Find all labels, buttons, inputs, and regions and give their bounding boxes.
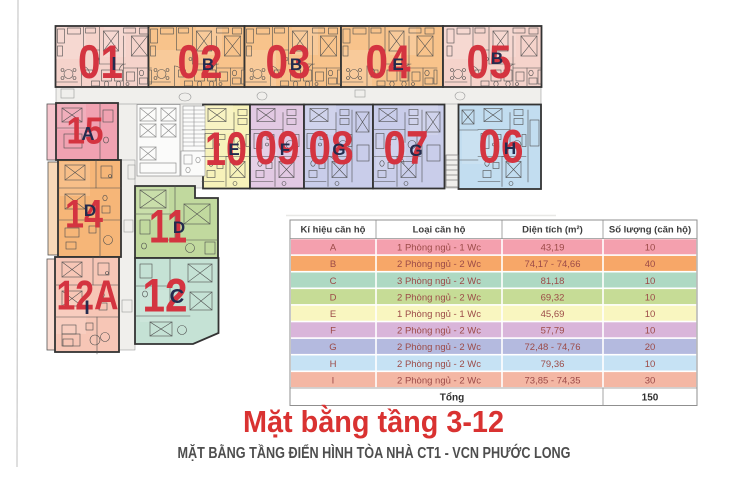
- svg-text:F: F: [330, 326, 336, 337]
- svg-text:72,48 - 74,76: 72,48 - 74,76: [525, 342, 581, 353]
- svg-text:I: I: [84, 298, 89, 319]
- svg-text:C: C: [330, 276, 337, 287]
- svg-text:81,18: 81,18: [541, 276, 565, 287]
- svg-text:G: G: [409, 141, 422, 160]
- svg-text:05: 05: [467, 35, 512, 88]
- svg-text:B: B: [290, 55, 302, 74]
- svg-text:09: 09: [255, 121, 300, 174]
- svg-text:2 Phòng ngủ - 2 Wc: 2 Phòng ngủ - 2 Wc: [397, 342, 481, 353]
- svg-text:E: E: [330, 309, 336, 320]
- svg-text:1 Phòng ngủ - 1 Wc: 1 Phòng ngủ - 1 Wc: [397, 309, 481, 320]
- svg-text:73,85 - 74,35: 73,85 - 74,35: [525, 375, 581, 386]
- svg-text:30: 30: [645, 375, 656, 386]
- svg-text:2 Phòng ngủ - 2 Wc: 2 Phòng ngủ - 2 Wc: [397, 259, 481, 270]
- svg-text:10: 10: [645, 326, 656, 337]
- svg-text:F: F: [280, 140, 290, 159]
- svg-text:A: A: [82, 124, 95, 144]
- svg-text:43,19: 43,19: [541, 243, 565, 254]
- svg-text:Mặt bằng tầng 3-12: Mặt bằng tầng 3-12: [243, 403, 504, 439]
- svg-text:79,36: 79,36: [541, 359, 565, 370]
- svg-text:D: D: [330, 292, 337, 303]
- svg-text:150: 150: [642, 393, 659, 404]
- svg-text:03: 03: [266, 35, 311, 88]
- svg-text:Tổng: Tổng: [440, 392, 464, 404]
- svg-text:A: A: [330, 243, 337, 254]
- svg-text:MẶT BẰNG TẦNG ĐIỂN HÌNH TÒA NH: MẶT BẰNG TẦNG ĐIỂN HÌNH TÒA NHÀ CT1 - VC…: [178, 443, 571, 462]
- svg-text:Kí hiệu căn hộ: Kí hiệu căn hộ: [301, 225, 366, 236]
- svg-text:E: E: [228, 140, 239, 159]
- svg-text:H: H: [330, 359, 337, 370]
- svg-text:08: 08: [309, 121, 354, 174]
- svg-text:B: B: [330, 259, 336, 270]
- svg-text:Số lượng (căn hộ): Số lượng (căn hộ): [609, 225, 691, 236]
- svg-text:10: 10: [645, 359, 656, 370]
- svg-text:D: D: [173, 218, 185, 237]
- svg-text:10: 10: [645, 243, 656, 254]
- svg-text:20: 20: [645, 342, 656, 353]
- svg-text:04: 04: [366, 35, 411, 88]
- svg-text:B: B: [202, 55, 214, 74]
- svg-text:Diện tích (m²): Diện tích (m²): [522, 225, 583, 236]
- svg-text:E: E: [392, 55, 403, 74]
- svg-text:2 Phòng ngủ - 2 Wc: 2 Phòng ngủ - 2 Wc: [397, 375, 481, 386]
- svg-text:69,32: 69,32: [541, 292, 565, 303]
- svg-text:40: 40: [645, 259, 656, 270]
- svg-text:I: I: [332, 375, 335, 386]
- svg-text:10: 10: [645, 309, 656, 320]
- svg-text:B: B: [491, 49, 503, 68]
- svg-text:3 Phòng ngủ - 2 Wc: 3 Phòng ngủ - 2 Wc: [397, 276, 481, 287]
- svg-text:I: I: [111, 54, 116, 74]
- svg-text:57,79: 57,79: [541, 326, 565, 337]
- svg-text:2 Phòng ngủ - 2 Wc: 2 Phòng ngủ - 2 Wc: [397, 359, 481, 370]
- svg-text:H: H: [504, 139, 516, 158]
- svg-text:10: 10: [205, 122, 247, 175]
- svg-text:02: 02: [178, 35, 223, 88]
- svg-text:Loại căn hộ: Loại căn hộ: [413, 225, 466, 236]
- svg-text:06: 06: [479, 120, 524, 173]
- svg-text:10: 10: [645, 292, 656, 303]
- svg-text:74,17 - 74,66: 74,17 - 74,66: [525, 259, 581, 270]
- svg-text:G: G: [329, 342, 336, 353]
- svg-text:45,69: 45,69: [541, 309, 565, 320]
- svg-text:2 Phòng ngủ - 2 Wc: 2 Phòng ngủ - 2 Wc: [397, 292, 481, 303]
- svg-text:1 Phòng ngủ - 1 Wc: 1 Phòng ngủ - 1 Wc: [397, 243, 481, 254]
- svg-text:C: C: [170, 286, 184, 308]
- svg-text:2 Phòng ngủ - 2 Wc: 2 Phòng ngủ - 2 Wc: [397, 326, 481, 337]
- svg-text:10: 10: [645, 276, 656, 287]
- svg-text:G: G: [332, 140, 345, 159]
- svg-text:D: D: [84, 201, 96, 220]
